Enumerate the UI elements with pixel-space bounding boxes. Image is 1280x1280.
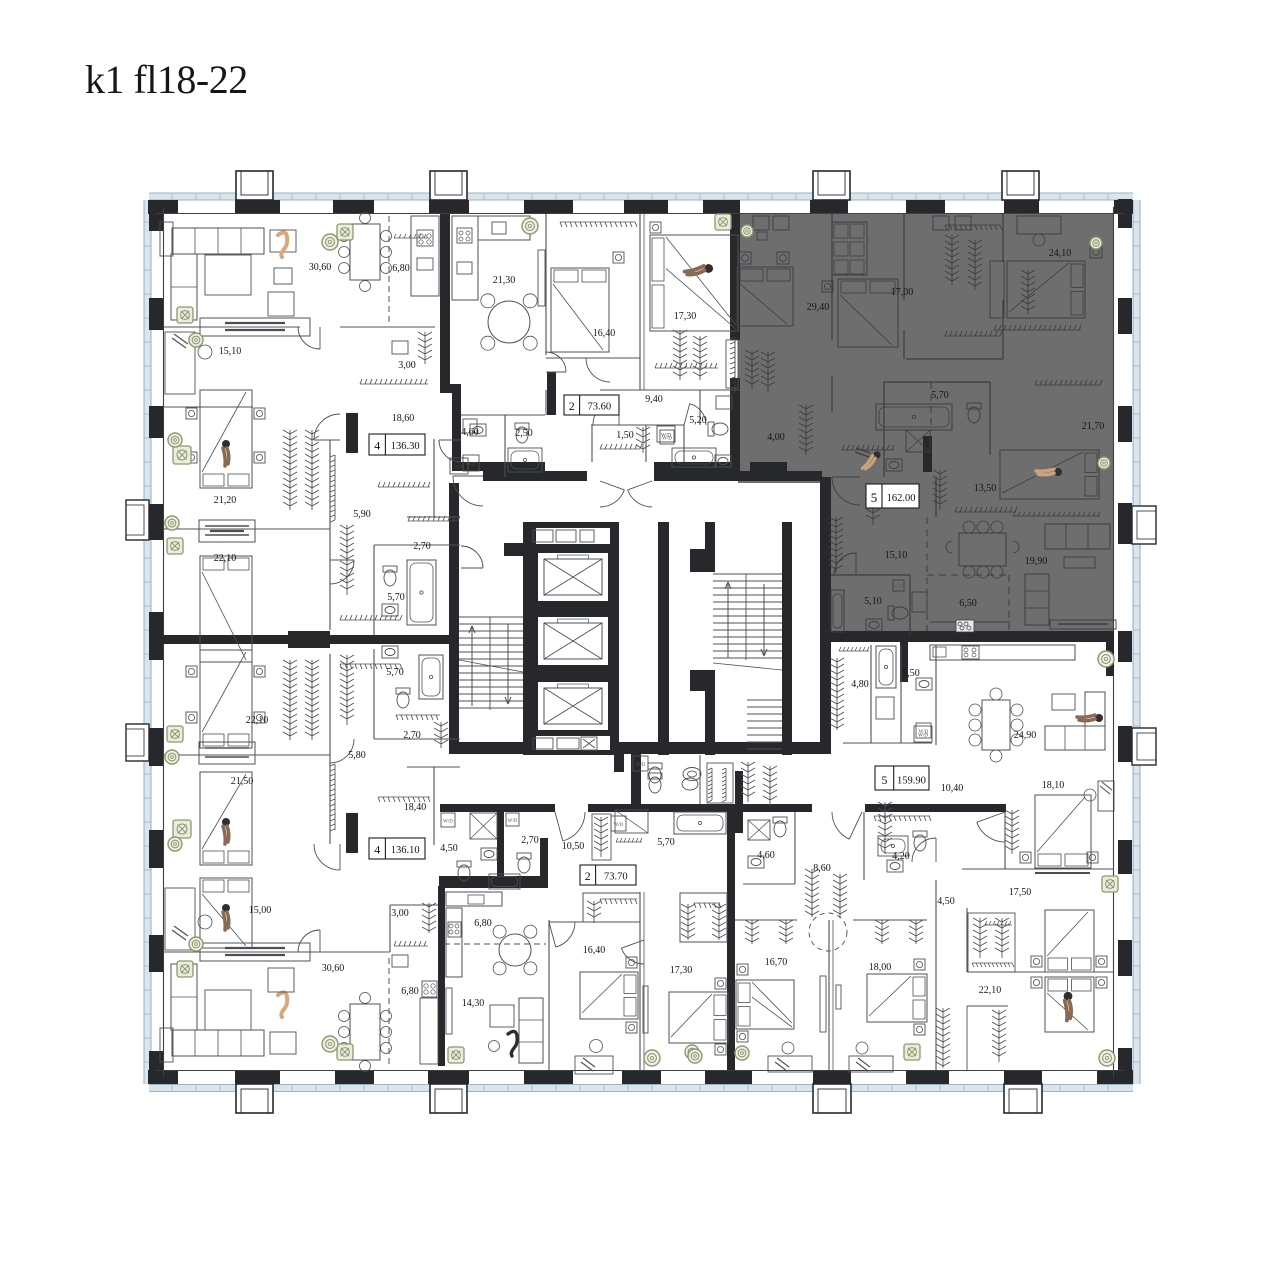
svg-text:16,40: 16,40: [583, 945, 606, 956]
svg-text:9,40: 9,40: [645, 394, 663, 405]
svg-text:3,00: 3,00: [391, 908, 409, 919]
svg-text:136.10: 136.10: [391, 845, 420, 856]
svg-text:5,80: 5,80: [348, 750, 366, 761]
svg-text:17,00: 17,00: [891, 287, 914, 298]
svg-text:5: 5: [881, 773, 887, 787]
svg-text:24,10: 24,10: [1049, 248, 1072, 259]
svg-text:4,00: 4,00: [767, 432, 785, 443]
svg-text:14,30: 14,30: [462, 998, 485, 1009]
svg-text:5,20: 5,20: [689, 415, 707, 426]
svg-text:W/D: W/D: [636, 763, 646, 768]
svg-text:W/D: W/D: [508, 819, 518, 824]
svg-text:4,20: 4,20: [892, 851, 910, 862]
svg-text:5,70: 5,70: [657, 837, 675, 848]
svg-text:5,70: 5,70: [931, 390, 949, 401]
svg-text:4,60: 4,60: [461, 427, 479, 438]
svg-text:6,50: 6,50: [959, 598, 977, 609]
svg-text:5,10: 5,10: [864, 596, 882, 607]
svg-text:24,90: 24,90: [1014, 730, 1037, 741]
svg-text:4: 4: [374, 439, 380, 453]
svg-text:136.30: 136.30: [391, 441, 420, 452]
svg-text:16,40: 16,40: [593, 328, 616, 339]
svg-text:W/D: W/D: [918, 733, 928, 739]
svg-text:22,10: 22,10: [214, 553, 237, 564]
svg-text:17,50: 17,50: [1009, 887, 1032, 898]
svg-text:8,60: 8,60: [813, 863, 831, 874]
svg-text:15,10: 15,10: [885, 550, 908, 561]
svg-text:4,50: 4,50: [440, 843, 458, 854]
svg-text:5,70: 5,70: [387, 592, 405, 603]
svg-text:21,70: 21,70: [1082, 421, 1105, 432]
svg-text:73.70: 73.70: [604, 871, 628, 882]
svg-text:18,40: 18,40: [404, 802, 427, 813]
svg-text:2,70: 2,70: [403, 730, 421, 741]
svg-text:6,80: 6,80: [392, 263, 410, 274]
svg-text:21,30: 21,30: [493, 275, 516, 286]
svg-text:6,80: 6,80: [474, 918, 492, 929]
svg-text:16,70: 16,70: [765, 957, 788, 968]
svg-text:17,30: 17,30: [674, 311, 697, 322]
svg-text:13,50: 13,50: [974, 483, 997, 494]
svg-text:17,30: 17,30: [670, 965, 693, 976]
svg-text:W/D: W/D: [454, 465, 464, 471]
svg-text:18,60: 18,60: [392, 413, 415, 424]
svg-text:5: 5: [871, 490, 878, 505]
svg-text:10,40: 10,40: [941, 783, 964, 794]
svg-text:2,50: 2,50: [515, 428, 533, 439]
svg-text:3,00: 3,00: [398, 360, 416, 371]
svg-text:W/D: W/D: [614, 823, 624, 828]
svg-text:19,90: 19,90: [1025, 556, 1048, 567]
svg-text:30,60: 30,60: [309, 262, 332, 273]
svg-text:22,10: 22,10: [979, 985, 1002, 996]
svg-text:30,60: 30,60: [322, 963, 345, 974]
svg-text:2: 2: [569, 399, 575, 413]
svg-text:29,40: 29,40: [807, 302, 830, 313]
svg-text:159.90: 159.90: [897, 775, 926, 786]
svg-text:10,50: 10,50: [562, 841, 585, 852]
svg-text:5,90: 5,90: [353, 509, 371, 520]
svg-text:15,00: 15,00: [249, 905, 272, 916]
svg-text:5,50: 5,50: [902, 668, 920, 679]
svg-text:4,80: 4,80: [851, 679, 869, 690]
svg-text:18,00: 18,00: [869, 962, 892, 973]
svg-text:162.00: 162.00: [887, 493, 916, 504]
svg-text:21,20: 21,20: [214, 495, 237, 506]
svg-text:21,50: 21,50: [231, 776, 254, 787]
svg-text:W/D: W/D: [443, 820, 453, 825]
svg-text:18,10: 18,10: [1042, 780, 1065, 791]
svg-text:4,60: 4,60: [757, 850, 775, 861]
svg-text:15,10: 15,10: [219, 346, 242, 357]
svg-text:2,70: 2,70: [521, 835, 539, 846]
svg-text:W/D: W/D: [894, 585, 904, 590]
svg-text:5,70: 5,70: [386, 667, 404, 678]
svg-text:22,10: 22,10: [246, 715, 269, 726]
svg-text:1,50: 1,50: [616, 430, 634, 441]
svg-text:73.60: 73.60: [587, 401, 611, 412]
svg-text:W/D: W/D: [661, 433, 671, 439]
svg-text:4,50: 4,50: [937, 896, 955, 907]
svg-text:4: 4: [374, 843, 380, 857]
svg-text:6,80: 6,80: [401, 986, 419, 997]
svg-text:2,70: 2,70: [413, 541, 431, 552]
svg-text:2: 2: [585, 869, 591, 883]
svg-text:k1 fl18-22: k1 fl18-22: [85, 57, 248, 102]
